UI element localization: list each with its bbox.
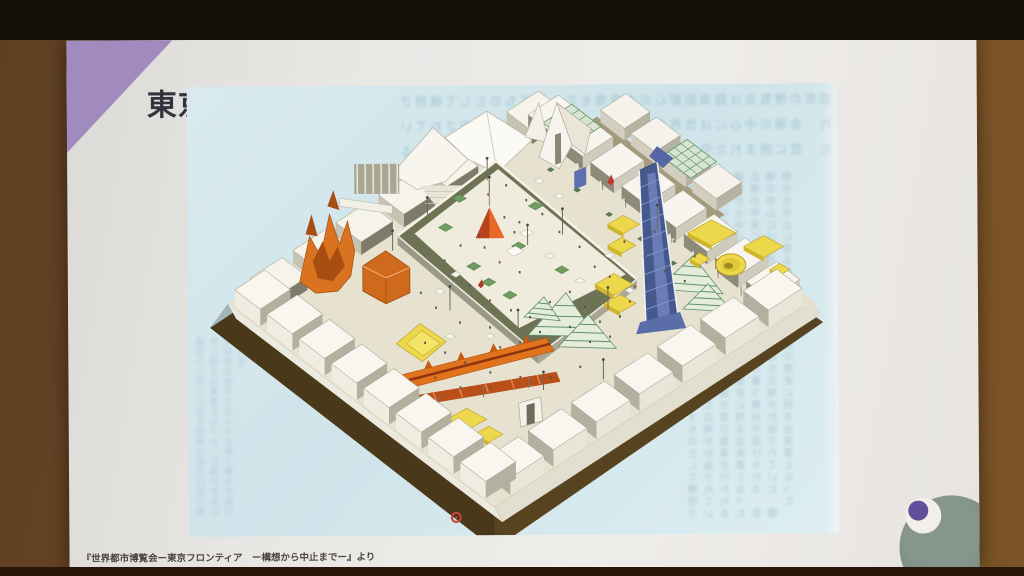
room-background: 東京メトロポリスプラザ 都市の博覧会は臨海副都心の未来像を広く示すものとして構想… bbox=[0, 0, 1024, 576]
isometric-plaza-illustration bbox=[187, 83, 840, 537]
projection-slide: 東京メトロポリスプラザ 都市の博覧会は臨海副都心の未来像を広く示すものとして構想… bbox=[66, 35, 979, 573]
room-ceiling-band bbox=[0, 0, 1024, 40]
slide-caption: 『世界都市博覧会ー東京フロンティア ー構想から中止までー』より bbox=[81, 549, 375, 565]
mascot-pupil-icon bbox=[908, 501, 928, 521]
mascot bbox=[899, 495, 979, 573]
illustration-panel: 都市の博覧会は臨海副都心の未来像を広く示すものとして構想され 会場の中心には世界… bbox=[187, 83, 840, 537]
mascot-eye-icon bbox=[905, 497, 941, 533]
room-floor-band bbox=[0, 567, 1024, 576]
